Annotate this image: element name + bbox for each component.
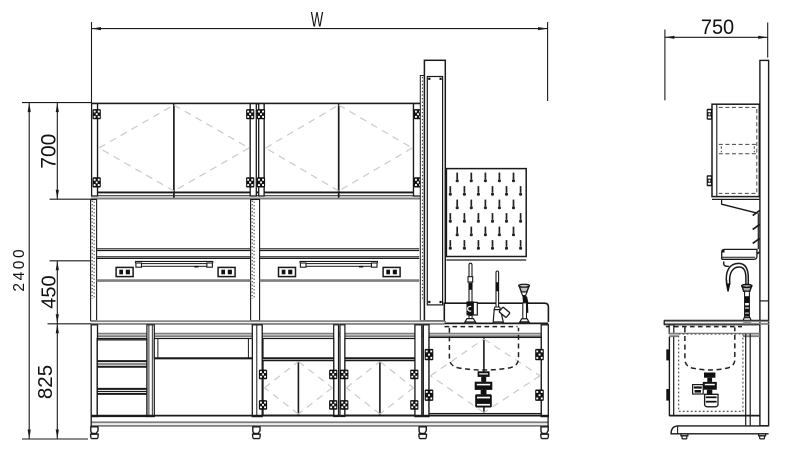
svg-text:750: 750 <box>701 15 734 39</box>
svg-text:W: W <box>311 7 324 31</box>
svg-text:450: 450 <box>39 275 61 308</box>
svg-text:700: 700 <box>37 134 60 169</box>
svg-text:825: 825 <box>34 365 57 399</box>
svg-text:2400: 2400 <box>11 247 28 292</box>
